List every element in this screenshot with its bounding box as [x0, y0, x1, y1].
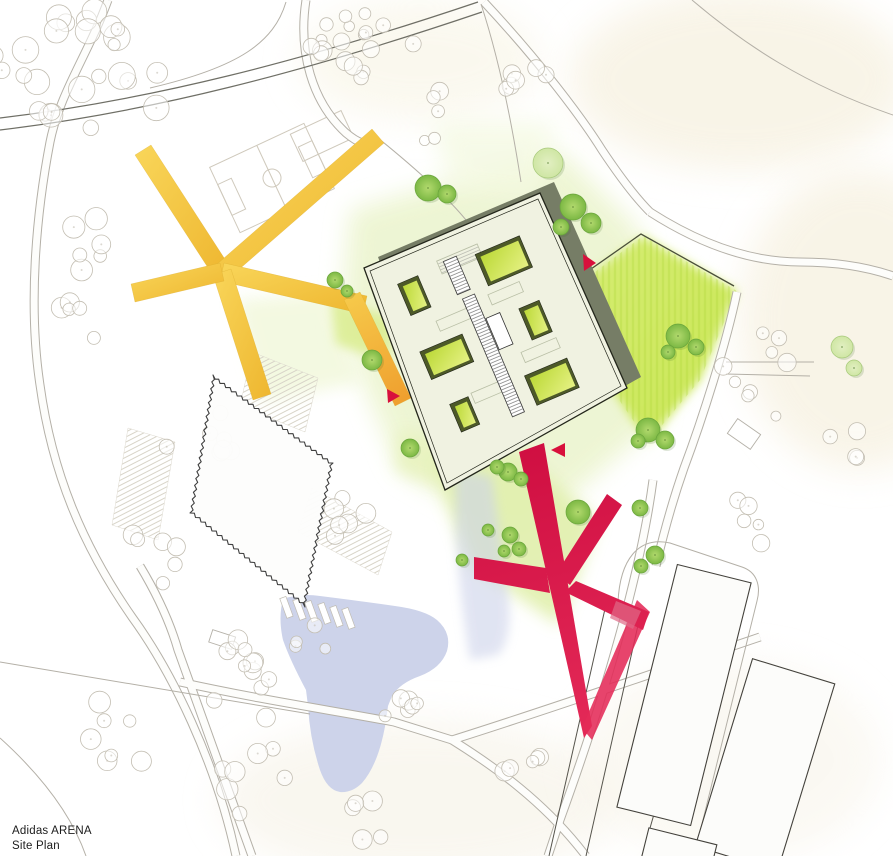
- tree-center-dot: [384, 715, 386, 717]
- outline-tree: [356, 503, 376, 523]
- outline-tree: [427, 91, 440, 104]
- outline-tree: [737, 514, 751, 528]
- tree-center-dot: [244, 665, 246, 667]
- tree-center-dot: [654, 554, 656, 556]
- outline-tree: [333, 33, 350, 50]
- tree-center-dot: [355, 802, 357, 804]
- site-plan-sheet: Adidas ARENA Site Plan: [0, 0, 893, 856]
- outline-tree: [73, 301, 87, 315]
- tree-center-dot: [272, 748, 274, 750]
- tree-center-dot: [409, 447, 411, 449]
- outline-tree: [131, 533, 145, 547]
- outline-tree: [83, 120, 99, 136]
- tree-center-dot: [640, 565, 642, 567]
- tree-center-dot: [412, 43, 414, 45]
- tree-center-dot: [518, 548, 520, 550]
- tree-center-dot: [560, 226, 562, 228]
- tree-center-dot: [637, 440, 639, 442]
- outline-tree: [778, 353, 796, 371]
- tree-center-dot: [515, 79, 517, 81]
- tree-center-dot: [314, 624, 316, 626]
- outline-tree: [742, 390, 754, 402]
- tree-center-dot: [545, 74, 547, 76]
- outline-tree: [167, 538, 185, 556]
- tree-center-dot: [117, 28, 119, 30]
- tree-center-dot: [520, 478, 522, 480]
- tree-center-dot: [547, 162, 549, 164]
- tree-center-dot: [590, 222, 592, 224]
- tree-center-dot: [81, 88, 83, 90]
- tree-center-dot: [505, 88, 507, 90]
- tree-center-dot: [166, 446, 168, 448]
- outline-tree: [85, 208, 107, 230]
- tree-center-dot: [841, 346, 843, 348]
- tree-center-dot: [722, 365, 724, 367]
- outline-tree: [168, 557, 182, 571]
- tree-center-dot: [695, 346, 697, 348]
- outline-tree: [320, 643, 331, 654]
- tree-center-dot: [677, 335, 679, 337]
- tree-center-dot: [509, 534, 511, 536]
- yellow-arm-west: [131, 263, 224, 302]
- outline-tree: [238, 643, 252, 657]
- outline-tree: [729, 376, 740, 387]
- outline-tree: [339, 10, 352, 23]
- tree-center-dot: [155, 107, 157, 109]
- tree-center-dot: [156, 72, 158, 74]
- outline-tree: [225, 762, 245, 782]
- outline-tree: [89, 691, 111, 713]
- tree-center-dot: [667, 351, 669, 353]
- outline-tree: [73, 248, 87, 262]
- tree-center-dot: [737, 499, 739, 501]
- tree-center-dot: [487, 529, 489, 531]
- tree-center-dot: [778, 337, 780, 339]
- tree-center-dot: [532, 761, 534, 763]
- outline-tree: [87, 331, 100, 344]
- tree-center-dot: [226, 650, 228, 652]
- outline-tree: [291, 636, 303, 648]
- tree-center-dot: [439, 90, 441, 92]
- outline-tree: [420, 135, 430, 145]
- tree-center-dot: [334, 535, 336, 537]
- outline-tree: [528, 60, 545, 77]
- tree-center-dot: [90, 738, 92, 740]
- tree-center-dot: [507, 471, 509, 473]
- tree-center-dot: [55, 30, 57, 32]
- tree-center-dot: [110, 755, 112, 757]
- outline-tree: [848, 423, 865, 440]
- tree-center-dot: [647, 429, 649, 431]
- tree-center-dot: [639, 507, 641, 509]
- tree-center-dot: [268, 678, 270, 680]
- tree-center-dot: [382, 24, 384, 26]
- tree-center-dot: [365, 32, 367, 34]
- drawing-title: Site Plan: [12, 839, 92, 854]
- tree-center-dot: [829, 436, 831, 438]
- outline-tree: [752, 535, 769, 552]
- tree-center-dot: [748, 505, 750, 507]
- outline-tree: [92, 69, 106, 83]
- outline-tree: [75, 19, 100, 44]
- tree-center-dot: [51, 111, 53, 113]
- tree-center-dot: [333, 508, 335, 510]
- tree-center-dot: [427, 187, 429, 189]
- tree-center-dot: [371, 800, 373, 802]
- tree-center-dot: [496, 466, 498, 468]
- tree-center-dot: [81, 269, 83, 271]
- tree-center-dot: [577, 511, 579, 513]
- outline-tree: [232, 806, 247, 821]
- tree-center-dot: [664, 439, 666, 441]
- tree-center-dot: [371, 359, 373, 361]
- tree-center-dot: [361, 839, 363, 841]
- outline-tree: [131, 751, 151, 771]
- outline-tree: [362, 41, 379, 58]
- tree-center-dot: [257, 753, 259, 755]
- tree-center-dot: [853, 367, 855, 369]
- tree-center-dot: [855, 456, 857, 458]
- tree-center-dot: [446, 193, 448, 195]
- outline-tree: [156, 577, 169, 590]
- outline-tree: [257, 708, 276, 727]
- tree-center-dot: [757, 524, 759, 526]
- outline-tree: [206, 693, 222, 709]
- tree-center-dot: [400, 697, 402, 699]
- outline-tree: [374, 830, 388, 844]
- tree-center-dot: [416, 702, 418, 704]
- tree-center-dot: [1, 69, 3, 71]
- site-plan-canvas: [0, 0, 893, 856]
- tree-center-dot: [25, 49, 27, 51]
- tree-center-dot: [100, 243, 102, 245]
- tree-center-dot: [461, 559, 463, 561]
- tree-center-dot: [334, 279, 336, 281]
- tree-center-dot: [73, 226, 75, 228]
- outline-tree: [771, 411, 781, 421]
- tree-center-dot: [437, 110, 439, 112]
- outline-tree: [303, 38, 319, 54]
- tree-center-dot: [762, 332, 764, 334]
- tree-center-dot: [509, 767, 511, 769]
- title-block: Adidas ARENA Site Plan: [12, 824, 92, 854]
- outline-tree: [766, 347, 778, 359]
- outline-tree: [359, 8, 371, 20]
- tree-center-dot: [103, 720, 105, 722]
- tree-center-dot: [572, 206, 574, 208]
- project-title: Adidas ARENA: [12, 824, 92, 839]
- tree-center-dot: [338, 524, 340, 526]
- outline-tree: [320, 18, 333, 31]
- outline-tree: [429, 132, 441, 144]
- tree-center-dot: [346, 290, 348, 292]
- tree-center-dot: [503, 550, 505, 552]
- outline-tree: [16, 68, 32, 84]
- outline-tree: [124, 715, 136, 727]
- outline-tree: [108, 62, 135, 89]
- tree-center-dot: [284, 777, 286, 779]
- outline-tree: [108, 39, 120, 51]
- outline-tree: [344, 57, 362, 75]
